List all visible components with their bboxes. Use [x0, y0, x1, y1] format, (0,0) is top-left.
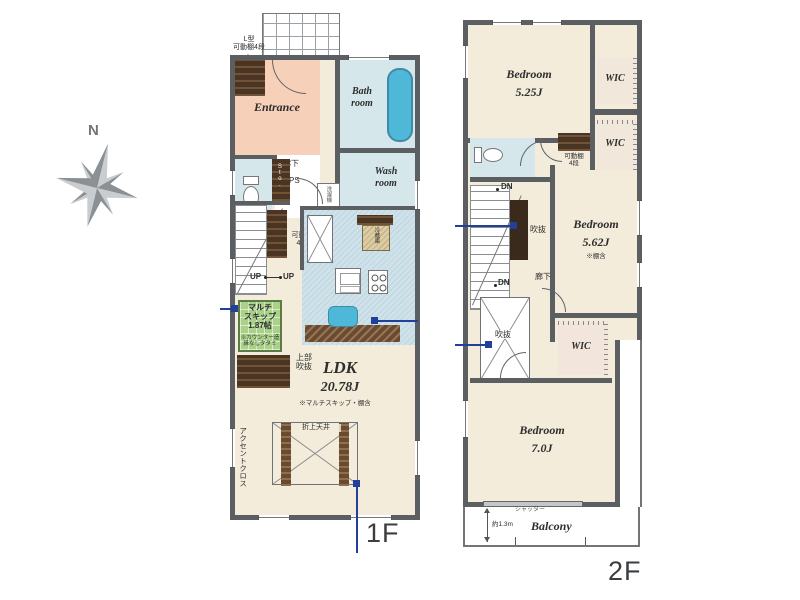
wall	[590, 25, 595, 170]
window	[230, 428, 235, 468]
kitchen-island-counter	[305, 325, 400, 342]
window	[463, 400, 468, 438]
annotation-line	[455, 225, 513, 227]
toilet-tank	[243, 176, 259, 185]
floor1-label: 1F	[366, 518, 400, 549]
balcony-tick	[515, 537, 516, 545]
wic2-room: WIC	[597, 120, 637, 170]
refrigerator: 冷蔵庫	[362, 225, 390, 251]
floor1-plan: Entrance 廊下 PS Bath room Wash room 洗濯機 S…	[230, 55, 420, 520]
dimension-arrow-bottom	[484, 537, 490, 542]
balcony: シャッター 約1.3m Balcony	[463, 507, 640, 547]
l-shelf-note-line2: 可動棚4段	[233, 44, 265, 51]
bathtub	[387, 68, 413, 142]
hanger-rail	[558, 321, 608, 325]
annotation-line	[356, 487, 358, 553]
wic3-label: WIC	[558, 341, 604, 352]
wall	[470, 378, 612, 383]
window	[230, 258, 235, 284]
window	[463, 45, 468, 79]
ceiling-beam	[281, 423, 291, 486]
annotation-marker	[485, 341, 492, 348]
wic1-label: WIC	[597, 73, 633, 84]
ldk-note: ※マルチスキップ・棚含	[275, 400, 395, 407]
balcony-depth-label: 約1.3m	[492, 521, 513, 528]
washroom-label-line1: Wash	[375, 166, 398, 177]
window	[415, 440, 420, 476]
ldk-size-label: 20.78J	[305, 380, 375, 396]
hanger-rail	[633, 58, 637, 104]
entrance-l-shelf	[235, 60, 265, 96]
wic3-room: WIC	[558, 321, 608, 375]
ldk-label: LDK	[305, 358, 375, 378]
window	[637, 200, 642, 236]
balcony-tick	[585, 537, 586, 545]
toilet-bowl-2f	[483, 148, 503, 162]
up-dot-2	[279, 276, 282, 279]
floor2-label: 2F	[608, 556, 642, 587]
l-shelf-note-line1: L型	[244, 36, 255, 43]
movable-shelf-line2: 4段	[569, 160, 579, 167]
balcony-label: Balcony	[531, 519, 572, 534]
up-connector	[266, 277, 279, 278]
entrance-label: Entrance	[237, 100, 317, 115]
dn-dot-1	[496, 188, 499, 191]
washing-machine-label: 洗濯機	[325, 186, 331, 203]
multi-skip-line3: 1.87帖	[248, 321, 272, 330]
movable-shelf-label-2f: 可動棚 4段	[558, 153, 590, 168]
pantry-cabinet	[307, 215, 333, 263]
skip-floor-storage	[237, 355, 290, 388]
washroom-label-line2: room	[375, 178, 397, 189]
annotation-marker	[371, 317, 378, 324]
sink-basin	[340, 273, 360, 285]
l-shelf-note: L型 可動棚4段	[228, 36, 270, 52]
toilet-tank-2f	[474, 147, 482, 163]
bedroom2-label: Bedroom	[558, 217, 634, 232]
multi-skip-line1: マルチ	[248, 303, 272, 312]
multi-skip-note: ※カウンター造 縁なしタタミ	[236, 335, 284, 348]
multi-skip-line2: スキップ	[244, 312, 276, 321]
annotation-line	[377, 320, 418, 322]
kitchen-cupboard	[357, 215, 393, 225]
stair-void	[510, 200, 528, 260]
coffered-ceiling-area: 折上天井	[272, 422, 358, 485]
staircase-2f	[470, 185, 510, 310]
gas-stove	[368, 270, 388, 294]
washroom-label: Wash room	[360, 166, 412, 190]
staircase-1f	[235, 205, 267, 295]
side-balcony-strip	[615, 340, 642, 507]
hanger-rail	[597, 120, 637, 124]
annotation-marker	[353, 480, 360, 487]
movable-shelf-2f	[558, 133, 590, 151]
multi-skip-note2: 縁なしタタミ	[243, 341, 276, 347]
sink-counter-line	[340, 286, 360, 293]
window	[415, 180, 420, 210]
bedroom3-label: Bedroom	[498, 423, 586, 438]
dn-dot-2	[494, 284, 497, 287]
dimension-arrow-top	[484, 508, 490, 513]
compass-rose-icon	[47, 128, 147, 238]
storage-label: Sto.	[276, 164, 283, 188]
hallway-label-2f: 廊下	[535, 272, 551, 281]
wic1-room: WIC	[597, 58, 637, 104]
down-label-2: DN	[498, 278, 510, 287]
bedroom2-note: ※棚含	[558, 253, 634, 260]
ceiling-beam	[339, 423, 349, 486]
shutter-label: シャッター	[515, 507, 545, 514]
window	[637, 262, 642, 288]
kitchen-sink-unit	[335, 268, 361, 294]
window	[348, 55, 390, 60]
window	[532, 20, 562, 25]
bedroom1-size: 5.25J	[486, 85, 572, 100]
island-sink	[328, 306, 358, 327]
wall	[595, 109, 637, 115]
up-label-2: UP	[283, 272, 294, 281]
annotation-marker	[510, 222, 517, 229]
accent-cloth-label: アクセントクロス	[238, 427, 247, 487]
down-label-1: DN	[501, 182, 513, 191]
bedroom2-size: 5.62J	[558, 235, 634, 250]
floor-plan-page: N L型 可動棚4段 Entrance 廊下 PS Bath	[0, 0, 800, 600]
wall	[300, 210, 304, 270]
void1-label: 吹抜	[530, 225, 546, 234]
annotation-line	[455, 344, 488, 346]
bathroom-label: Bath room	[338, 86, 386, 110]
multi-skip-label: マルチ スキップ 1.87帖	[238, 303, 282, 331]
up-label-1: UP	[250, 272, 261, 281]
refrigerator-label: 冷蔵庫	[373, 227, 379, 244]
bedroom1-label: Bedroom	[486, 67, 572, 82]
window	[230, 170, 235, 196]
bathroom-label-line2: room	[351, 98, 373, 109]
annotation-marker	[231, 305, 238, 312]
hanger-rail	[604, 321, 608, 375]
movable-shelf-line1: 可動棚	[564, 153, 584, 160]
bedroom3-size: 7.0J	[498, 441, 586, 456]
hanger-rail	[633, 120, 637, 170]
bathroom-label-line1: Bath	[352, 86, 372, 97]
void2-label: 吹抜	[495, 330, 511, 339]
wall	[555, 313, 637, 318]
window	[258, 515, 290, 520]
coffered-ceiling-label: 折上天井	[291, 424, 341, 432]
window	[492, 20, 522, 25]
stair-shelf-closet	[267, 210, 287, 258]
wic2-label: WIC	[597, 138, 633, 149]
